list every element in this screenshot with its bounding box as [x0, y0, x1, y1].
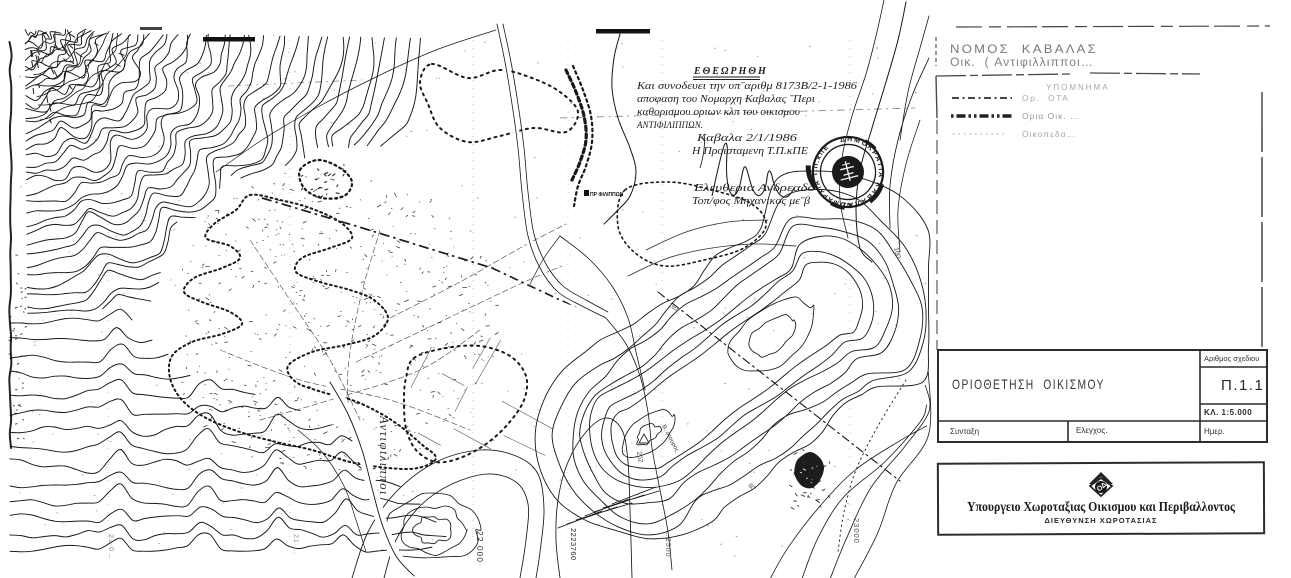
svg-text:23000: 23000: [852, 518, 861, 544]
svg-text:2223760: 2223760: [569, 528, 578, 561]
svg-text:ΔΙΕΥΘΥΝΣΗ ΧΩΡΟΤΑΣΙΑΣ: ΔΙΕΥΘΥΝΣΗ ΧΩΡΟΤΑΣΙΑΣ: [1044, 516, 1157, 525]
svg-text:Τοπ/φος Μηχανικος μεˉβ: Τοπ/φος Μηχανικος μεˉβ: [692, 196, 810, 207]
svg-text:Η Προισταμενη Τ.Π.κΠΕ: Η Προισταμενη Τ.Π.κΠΕ: [691, 146, 808, 157]
svg-text:ΝΟΜΟΣ ΚΑΒΑΛΑΣ: ΝΟΜΟΣ ΚΑΒΑΛΑΣ: [950, 44, 1098, 56]
svg-text:Οικοπεδα…: Οικοπεδα…: [1022, 129, 1076, 139]
svg-text:…2500: …2500: [664, 530, 671, 558]
svg-text:Ελευθερια Ανδρεαδο: Ελευθερια Ανδρεαδο: [693, 183, 815, 194]
svg-text:Ορια Οικ. …: Ορια Οικ. …: [1022, 111, 1080, 121]
svg-text:ΠΡ ΦΙΛΙΠΠΩΝ: ΠΡ ΦΙΛΙΠΠΩΝ: [590, 192, 624, 198]
svg-text:καθορισμου οριων κλπ του οικισ: καθορισμου οριων κλπ του οικισμου: [637, 107, 800, 118]
svg-text:ΚΛ. 1:5.000: ΚΛ. 1:5.000: [1204, 408, 1252, 417]
svg-text:ΕΘΕΩΡΗΘΗ: ΕΘΕΩΡΗΘΗ: [693, 66, 768, 77]
svg-text:21·…: 21·…: [292, 534, 299, 555]
svg-text:Ημερ.: Ημερ.: [1204, 427, 1225, 436]
svg-text:Ορ. ΟΤΑ: Ορ. ΟΤΑ: [1022, 93, 1069, 103]
svg-text:Οικ. ( Αντιφιλλιπποι…: Οικ. ( Αντιφιλλιπποι…: [950, 57, 1094, 69]
svg-text:21·0…: 21·0…: [107, 534, 114, 560]
svg-text:Ελεγχος.: Ελεγχος.: [1076, 426, 1107, 435]
svg-text:Αντιφιλιπποι: Αντιφιλιπποι: [377, 415, 391, 496]
svg-text:22 000: 22 000: [475, 531, 485, 563]
svg-text:Π.1.1: Π.1.1: [1221, 377, 1264, 394]
svg-text:αποφαση του Νομαρχη Καβαλας ˉΠ: αποφαση του Νομαρχη Καβαλας ˉΠερι: [637, 94, 815, 105]
svg-text:ΑΝΤΙΦΙΛΙΠΠΩΝ.: ΑΝΤΙΦΙΛΙΠΠΩΝ.: [636, 120, 703, 130]
svg-text:Υπουργειο Χωροταξιας Οικισμου: Υπουργειο Χωροταξιας Οικισμου και Περιβα…: [967, 499, 1235, 514]
svg-text:Και συνοδευει την υπˉαριθμ 817: Και συνοδευει την υπˉαριθμ 8173Β/2-1-198…: [636, 81, 857, 92]
svg-text:Αριθμος σχεδιου: Αριθμος σχεδιου: [1204, 354, 1259, 363]
svg-text:ΟΡΙΟΘΕΤΗΣΗ ΟΙΚΙΣΜΟΥ: ΟΡΙΟΘΕΤΗΣΗ ΟΙΚΙΣΜΟΥ: [952, 376, 1105, 392]
svg-text:ΥΠΟΜΝΗΜΑ: ΥΠΟΜΝΗΜΑ: [1046, 83, 1110, 92]
svg-text:Καβαλα 2/1/1986: Καβαλα 2/1/1986: [696, 132, 798, 144]
svg-text:Συνταξη: Συνταξη: [950, 427, 979, 436]
